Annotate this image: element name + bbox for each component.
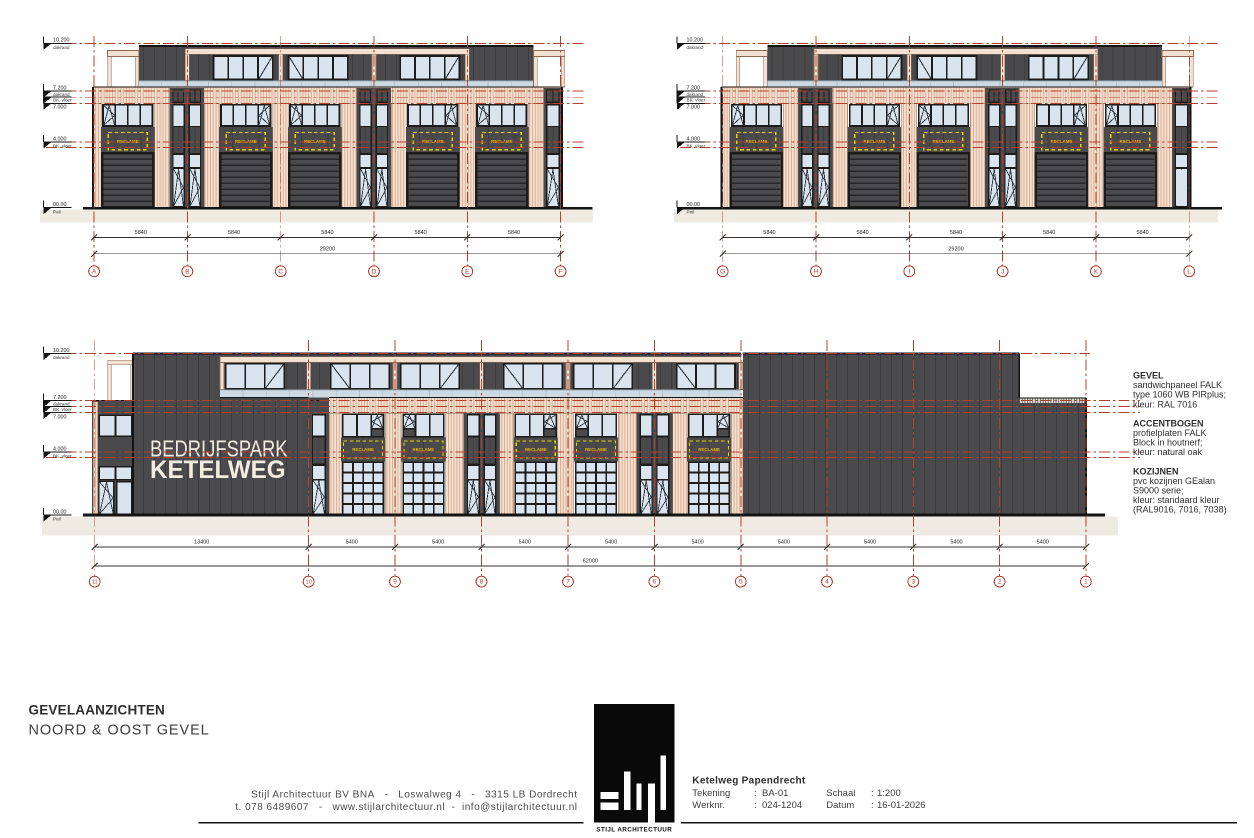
svg-text:1:200: 1:200 bbox=[877, 788, 901, 799]
svg-text:5840: 5840 bbox=[1136, 230, 1148, 236]
svg-text:kleur: RAL 7016: kleur: RAL 7016 bbox=[1133, 399, 1197, 409]
svg-text:4.000: 4.000 bbox=[53, 136, 67, 142]
svg-text:7: 7 bbox=[566, 579, 570, 586]
svg-text:S9000 serie;: S9000 serie; bbox=[1133, 486, 1184, 496]
svg-text:10: 10 bbox=[305, 580, 311, 586]
svg-text:RECLAME: RECLAME bbox=[117, 139, 139, 144]
svg-text:RECLAME: RECLAME bbox=[235, 139, 257, 144]
svg-text:5840: 5840 bbox=[1043, 230, 1055, 236]
svg-text:7.200: 7.200 bbox=[687, 85, 701, 91]
svg-text:62000: 62000 bbox=[583, 559, 598, 565]
svg-text:11: 11 bbox=[92, 580, 98, 586]
svg-text:7.200: 7.200 bbox=[53, 85, 67, 91]
svg-text:RECLAME: RECLAME bbox=[304, 139, 326, 144]
svg-text:5400: 5400 bbox=[432, 540, 444, 546]
svg-text:7.200: 7.200 bbox=[53, 395, 67, 401]
svg-text:10.200: 10.200 bbox=[53, 348, 70, 354]
svg-text:ACCENTBOGEN: ACCENTBOGEN bbox=[1133, 419, 1204, 429]
svg-text:4: 4 bbox=[825, 579, 829, 586]
svg-text:E: E bbox=[465, 268, 470, 275]
svg-text:Tekening: Tekening bbox=[692, 788, 730, 799]
svg-text:5840: 5840 bbox=[321, 230, 333, 236]
svg-text:C: C bbox=[278, 268, 283, 275]
svg-text:dakrand: dakrand bbox=[53, 45, 70, 50]
svg-text:2: 2 bbox=[998, 579, 1002, 586]
svg-text:7.000: 7.000 bbox=[687, 105, 701, 111]
svg-text:RECLAME: RECLAME bbox=[491, 139, 513, 144]
svg-text:RECLAME: RECLAME bbox=[352, 447, 374, 452]
svg-text:00.00: 00.00 bbox=[687, 202, 701, 208]
svg-text:BA-01: BA-01 bbox=[762, 788, 788, 799]
svg-text:5400: 5400 bbox=[864, 540, 876, 546]
svg-text:RECLAME: RECLAME bbox=[585, 447, 607, 452]
svg-text:Block in houtnerf;: Block in houtnerf; bbox=[1133, 438, 1203, 448]
svg-text:5400: 5400 bbox=[1037, 540, 1049, 546]
svg-text:5400: 5400 bbox=[605, 540, 617, 546]
svg-text:3: 3 bbox=[911, 579, 915, 586]
svg-text:7.000: 7.000 bbox=[53, 414, 67, 420]
svg-text::: : bbox=[754, 788, 757, 799]
svg-text:5400: 5400 bbox=[346, 540, 358, 546]
svg-text:G: G bbox=[720, 268, 725, 275]
svg-text:1: 1 bbox=[1084, 579, 1088, 586]
svg-text:BK. vloer: BK. vloer bbox=[687, 144, 706, 149]
svg-text:F: F bbox=[559, 268, 563, 275]
svg-text:5400: 5400 bbox=[519, 540, 531, 546]
svg-text:dakrand: dakrand bbox=[53, 355, 70, 360]
svg-text::: : bbox=[871, 788, 874, 799]
svg-text:Datum: Datum bbox=[826, 800, 854, 811]
svg-text:Schaal: Schaal bbox=[826, 788, 855, 799]
svg-text:5400: 5400 bbox=[950, 540, 962, 546]
svg-text:KOZIJNEN: KOZIJNEN bbox=[1133, 466, 1179, 476]
svg-text:29200: 29200 bbox=[948, 246, 963, 252]
svg-text:BK. vloer: BK. vloer bbox=[53, 454, 72, 459]
svg-text:D: D bbox=[372, 268, 377, 275]
svg-text:Peil: Peil bbox=[53, 517, 61, 522]
svg-text:(RAL9016, 7016, 7038): (RAL9016, 7016, 7038) bbox=[1133, 505, 1227, 515]
svg-text:A: A bbox=[92, 268, 97, 275]
svg-text:8: 8 bbox=[480, 579, 484, 586]
svg-text:RECLAME: RECLAME bbox=[698, 447, 720, 452]
svg-text:dakrand: dakrand bbox=[687, 45, 704, 50]
svg-text:GEVEL: GEVEL bbox=[1133, 371, 1164, 381]
svg-text:H: H bbox=[814, 268, 819, 275]
svg-text:Ketelweg Papendrecht: Ketelweg Papendrecht bbox=[692, 776, 806, 787]
svg-text::: : bbox=[754, 800, 757, 811]
svg-text:6: 6 bbox=[653, 579, 657, 586]
svg-text:5840: 5840 bbox=[414, 230, 426, 236]
svg-text:pvc kozijnen GEalan: pvc kozijnen GEalan bbox=[1133, 476, 1215, 486]
svg-text:00.00: 00.00 bbox=[53, 509, 67, 515]
svg-text:9: 9 bbox=[393, 579, 397, 586]
svg-text:7.000: 7.000 bbox=[53, 105, 67, 111]
svg-text:J: J bbox=[1001, 268, 1004, 275]
svg-text:L: L bbox=[1187, 268, 1191, 275]
svg-text:5840: 5840 bbox=[950, 230, 962, 236]
svg-text:5400: 5400 bbox=[691, 540, 703, 546]
svg-text:5840: 5840 bbox=[135, 230, 147, 236]
svg-text:10.200: 10.200 bbox=[53, 38, 70, 44]
svg-text:5: 5 bbox=[739, 579, 743, 586]
svg-text:Peil: Peil bbox=[53, 209, 61, 214]
svg-text:kleur: natural oak: kleur: natural oak bbox=[1133, 447, 1203, 457]
svg-text:GEVELAANZICHTEN: GEVELAANZICHTEN bbox=[29, 703, 166, 718]
svg-text:5400: 5400 bbox=[778, 540, 790, 546]
svg-text:024-1204: 024-1204 bbox=[762, 800, 802, 811]
svg-text:RECLAME: RECLAME bbox=[525, 447, 547, 452]
svg-text:STIJL ARCHITECTUUR: STIJL ARCHITECTUUR bbox=[596, 827, 672, 834]
svg-text:kleur: standaard kleur: kleur: standaard kleur bbox=[1133, 495, 1220, 505]
svg-text:t. 078 6489607 - www.stijl: t. 078 6489607 - www.stijlarchitectuur.n… bbox=[235, 802, 577, 813]
svg-text:type 1060 WB PIRplus;: type 1060 WB PIRplus; bbox=[1133, 390, 1226, 400]
svg-text:16-01-2026: 16-01-2026 bbox=[877, 800, 926, 811]
svg-text:dakrand: dakrand bbox=[687, 92, 704, 97]
svg-text:RECLAME: RECLAME bbox=[413, 447, 435, 452]
svg-text:5840: 5840 bbox=[763, 230, 775, 236]
svg-text:Werknr.: Werknr. bbox=[692, 800, 725, 811]
svg-text:K: K bbox=[1094, 268, 1099, 275]
svg-text:BK. vloer: BK. vloer bbox=[53, 407, 72, 412]
svg-text:KETELWEG: KETELWEG bbox=[150, 456, 286, 484]
svg-text:5840: 5840 bbox=[508, 230, 520, 236]
svg-text::: : bbox=[871, 800, 874, 811]
svg-text:dakrand: dakrand bbox=[53, 402, 70, 407]
svg-text:10.200: 10.200 bbox=[687, 38, 704, 44]
svg-text:29200: 29200 bbox=[320, 246, 335, 252]
svg-text:5840: 5840 bbox=[856, 230, 868, 236]
svg-text:profielplaten FALK: profielplaten FALK bbox=[1133, 428, 1207, 438]
svg-text:BK. vloer: BK. vloer bbox=[53, 144, 72, 149]
svg-text:dakrand: dakrand bbox=[53, 92, 70, 97]
svg-text:BK. vloer: BK. vloer bbox=[53, 98, 72, 103]
svg-text:Peil: Peil bbox=[687, 209, 695, 214]
svg-text:I: I bbox=[908, 268, 910, 275]
svg-text:Stijl Architectuur BV BNA -: Stijl Architectuur BV BNA - Loswalweg 4 … bbox=[251, 790, 577, 801]
svg-text:RECLAME: RECLAME bbox=[422, 139, 444, 144]
svg-text:NOORD & OOST GEVEL: NOORD & OOST GEVEL bbox=[29, 723, 210, 739]
svg-text:BK. vloer: BK. vloer bbox=[687, 98, 706, 103]
svg-text:13400: 13400 bbox=[194, 540, 209, 546]
svg-text:B: B bbox=[185, 268, 190, 275]
svg-text:5840: 5840 bbox=[228, 230, 240, 236]
svg-text:00.00: 00.00 bbox=[53, 202, 67, 208]
svg-text:4.000: 4.000 bbox=[687, 136, 701, 142]
svg-text:4.000: 4.000 bbox=[53, 446, 67, 452]
svg-text:sandwichpaneel FALK: sandwichpaneel FALK bbox=[1133, 380, 1222, 390]
